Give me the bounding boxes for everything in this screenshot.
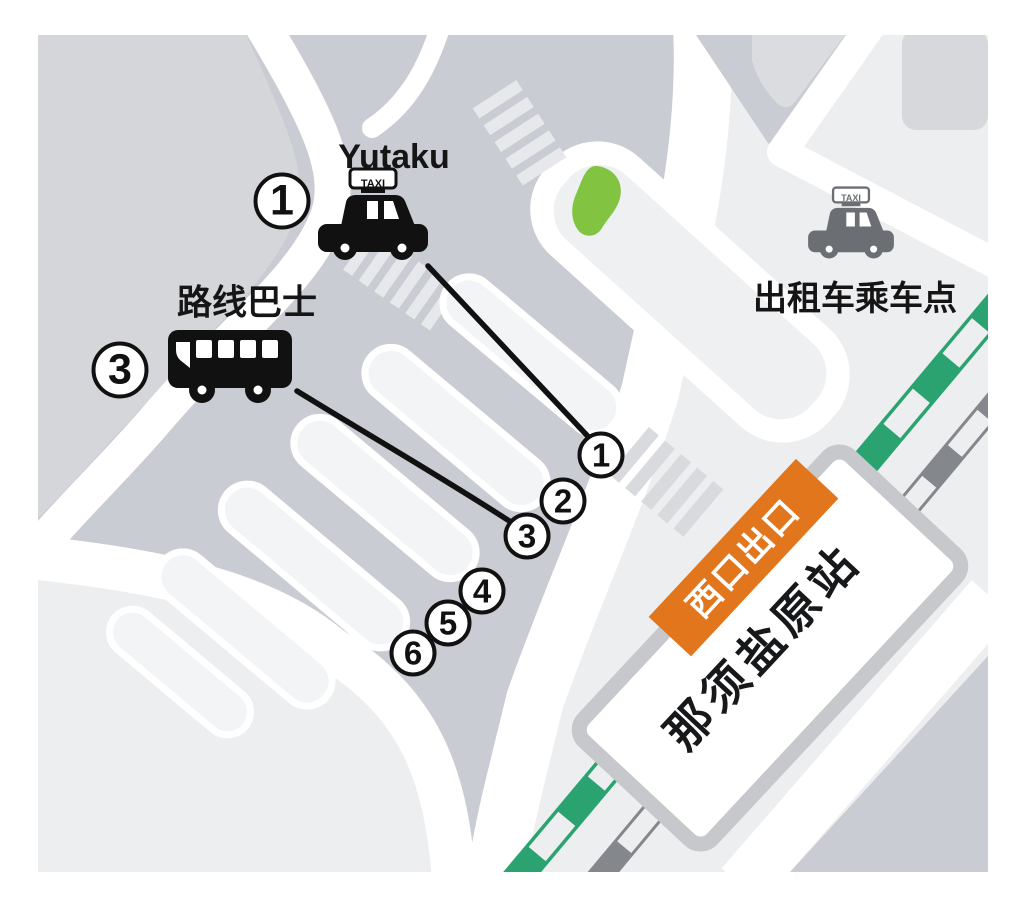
bus-stop-1: 1 [578, 432, 625, 479]
bus-stop-6: 6 [390, 630, 437, 677]
taxi-sign-text-east: TAXI [841, 193, 861, 203]
taxi-company-label: Yutaku [338, 140, 449, 174]
station-area-map: 西口出口 那须盐原站 TAXI TAXI Yutaku 1 路线巴士 3 出租车… [0, 0, 1024, 916]
taxi-sign-text-west: TAXI [361, 178, 385, 190]
city-block-corner [902, 30, 988, 130]
taxi-company-marker: 1 [254, 173, 311, 230]
local-bus-marker: 3 [92, 342, 149, 399]
local-bus-label: 路线巴士 [177, 286, 317, 321]
map-canvas: 西口出口 那须盐原站 TAXI TAXI [0, 0, 1024, 916]
bus-stop-3: 3 [504, 513, 551, 560]
bus-stop-2: 2 [540, 478, 587, 525]
taxi-pickup-label: 出租车乘车点 [753, 282, 957, 316]
